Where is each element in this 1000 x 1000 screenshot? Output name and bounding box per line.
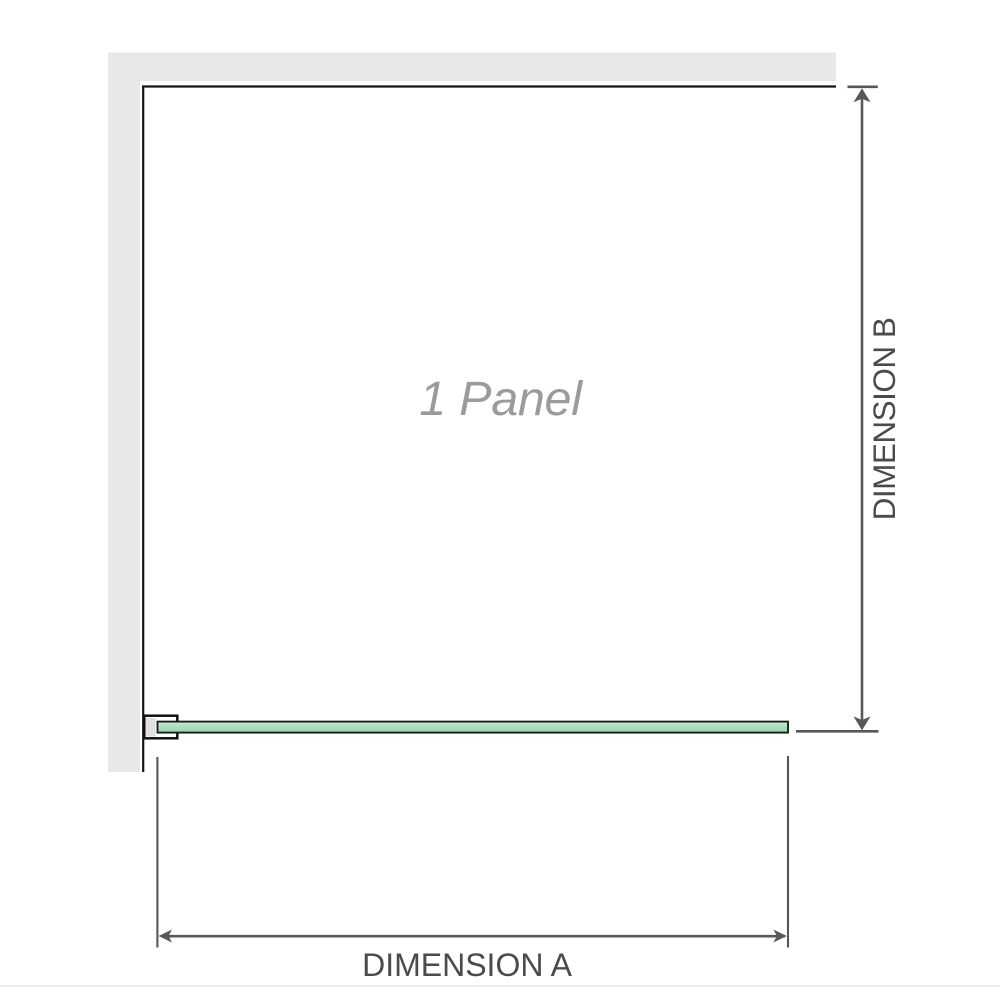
svg-text:1 Panel: 1 Panel xyxy=(419,372,583,426)
svg-text:DIMENSION A: DIMENSION A xyxy=(362,947,572,983)
svg-text:DIMENSION B: DIMENSION B xyxy=(866,318,902,521)
